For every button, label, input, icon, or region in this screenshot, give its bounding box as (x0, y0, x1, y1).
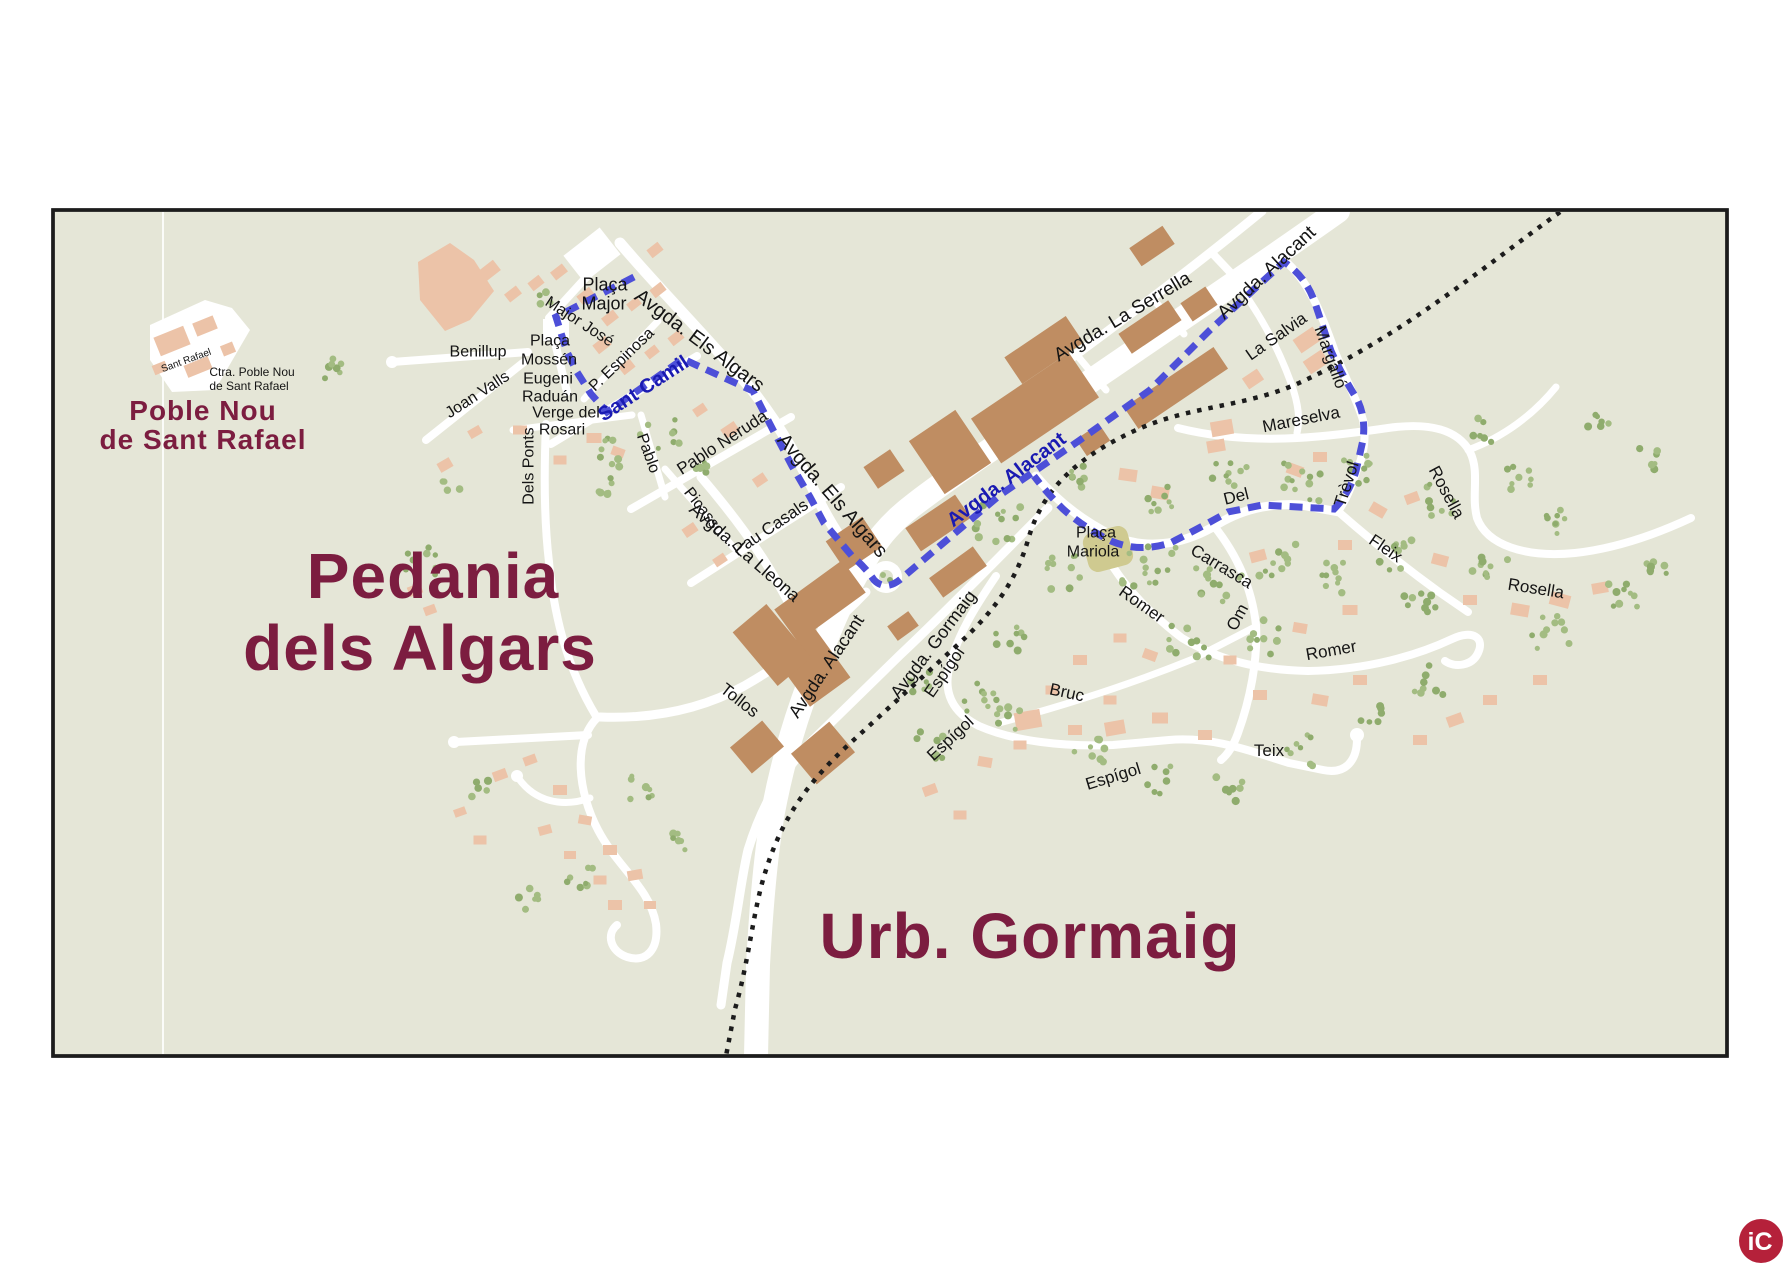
tree-dot (678, 838, 684, 844)
tree-dot (1270, 560, 1276, 566)
tree-dot (1148, 509, 1154, 515)
street-label: Plaça (1076, 525, 1116, 542)
map-canvas: PlaçaMajorMajor JoséP. EspinosaPlaçaMoss… (0, 0, 1787, 1263)
tree-dot (1101, 745, 1109, 753)
tree-dot (1634, 604, 1640, 610)
tree-dot (1367, 719, 1372, 724)
street-label: Benillup (450, 344, 507, 361)
tree-dot (1323, 560, 1330, 567)
tree-dot (672, 417, 677, 422)
tree-dot (1072, 749, 1078, 755)
tree-dot (1664, 571, 1669, 576)
tree-dot (1001, 509, 1006, 514)
tree-dot (1012, 515, 1019, 522)
street-label: Raduán (522, 389, 578, 406)
tree-dot (1069, 469, 1074, 474)
tree-dot (1127, 551, 1133, 557)
tree-dot (1228, 460, 1234, 466)
tree-dot (1080, 463, 1087, 470)
tree-dot (1540, 615, 1546, 621)
building (1353, 675, 1367, 685)
tree-dot (1045, 566, 1050, 571)
tree-dot (583, 881, 588, 886)
tree-dot (1004, 535, 1011, 542)
tree-dot (974, 681, 980, 687)
building (1152, 713, 1168, 724)
tree-dot (1280, 484, 1288, 492)
street-label: Dels Ponts (521, 427, 538, 504)
tree-dot (1305, 480, 1313, 488)
tree-dot (484, 777, 492, 785)
tree-dot (1636, 445, 1643, 452)
street-label: Ctra. Poble Nou (209, 365, 294, 379)
tree-dot (1424, 608, 1431, 615)
building (1338, 540, 1352, 550)
tree-dot (1315, 497, 1322, 504)
tree-dot (597, 489, 605, 497)
tree-dot (670, 835, 676, 841)
tree-dot (1528, 477, 1534, 483)
tree-dot (1387, 567, 1392, 572)
tree-dot (1615, 600, 1623, 608)
tree-dot (1425, 497, 1433, 505)
tree-dot (914, 735, 921, 742)
tree-dot (682, 847, 687, 852)
tree-dot (974, 520, 981, 527)
building (1104, 696, 1117, 705)
tree-dot (1377, 705, 1384, 712)
tree-dot (602, 438, 607, 443)
tree-dot (1165, 567, 1171, 573)
tree-dot (1412, 689, 1418, 695)
tree-dot (1193, 565, 1199, 571)
tree-dot (441, 478, 447, 484)
tree-dot (564, 879, 571, 886)
tree-dot (1507, 485, 1515, 493)
tree-dot (1014, 647, 1022, 655)
tree-dot (1364, 453, 1370, 459)
tree-dot (1166, 637, 1171, 642)
tree-dot (1094, 736, 1101, 743)
tree-dot (1338, 589, 1345, 596)
building (587, 433, 602, 443)
tree-dot (468, 793, 476, 801)
tree-dot (1420, 678, 1428, 686)
building (1073, 655, 1087, 665)
tree-dot (1561, 626, 1568, 633)
tree-dot (1222, 592, 1230, 600)
tree-dot (537, 292, 543, 298)
tree-dot (1439, 691, 1446, 698)
tree-dot (1173, 545, 1179, 551)
tree-dot (1323, 583, 1329, 589)
tree-dot (1426, 662, 1433, 669)
building (1483, 695, 1497, 705)
tree-dot (975, 533, 983, 541)
street-label: Teix (1254, 741, 1285, 760)
tree-dot (1021, 634, 1028, 641)
tree-dot (962, 698, 968, 704)
tree-dot (981, 697, 988, 704)
tree-dot (1275, 625, 1281, 631)
tree-dot (1375, 718, 1382, 725)
street-label: Mossén (521, 352, 577, 369)
tree-dot (1045, 560, 1052, 567)
tree-dot (1068, 564, 1075, 571)
region-title-poble-nou-line2: de Sant Rafael (100, 424, 307, 455)
building (553, 785, 567, 795)
building (1224, 656, 1237, 665)
tree-dot (1119, 577, 1125, 583)
tree-dot (1076, 574, 1083, 581)
tree-dot (985, 704, 990, 709)
tree-dot (1469, 567, 1477, 575)
tree-dot (1605, 580, 1613, 588)
tree-dot (1164, 484, 1170, 490)
building (1198, 730, 1212, 740)
tree-dot (1201, 645, 1207, 651)
tree-dot (1504, 556, 1511, 563)
tree-dot (1260, 616, 1268, 624)
tree-dot (1243, 464, 1249, 470)
tree-dot (1623, 581, 1630, 588)
building (1068, 725, 1082, 735)
tree-dot (1151, 501, 1156, 506)
tree-dot (995, 720, 1002, 727)
tree-dot (1474, 415, 1482, 423)
tree-dot (1216, 581, 1223, 588)
tree-dot (603, 490, 611, 498)
tree-dot (1648, 461, 1656, 469)
tree-dot (1167, 499, 1172, 504)
tree-dot (1239, 779, 1246, 786)
tree-dot (608, 475, 614, 481)
tree-dot (1477, 433, 1483, 439)
tree-dot (1405, 602, 1411, 608)
tree-dot (597, 454, 604, 461)
tree-dot (1611, 603, 1616, 608)
tree-dot (1273, 637, 1281, 645)
tree-dot (1006, 640, 1014, 648)
tree-dot (1504, 466, 1511, 473)
tree-dot (599, 446, 605, 452)
tree-dot (1417, 689, 1425, 697)
building (608, 900, 622, 910)
tree-dot (1478, 554, 1486, 562)
tree-dot (1613, 588, 1621, 596)
tree-dot (1290, 478, 1295, 483)
tree-dot (1224, 473, 1229, 478)
tree-dot (1278, 565, 1285, 572)
tree-dot (646, 794, 652, 800)
tree-dot (981, 691, 987, 697)
building (1343, 605, 1358, 615)
tree-dot (1557, 507, 1564, 514)
tree-dot (1488, 439, 1494, 445)
building (1533, 675, 1547, 685)
tree-dot (675, 831, 681, 837)
building (1118, 468, 1137, 482)
tree-dot (645, 422, 651, 428)
tree-dot (1527, 482, 1533, 488)
tree-dot (1335, 575, 1341, 581)
tree-dot (1554, 513, 1560, 519)
tree-dot (1152, 789, 1158, 795)
tree-dot (1014, 631, 1020, 637)
tree-dot (1016, 707, 1023, 714)
building (594, 876, 607, 885)
tree-dot (1143, 565, 1149, 571)
tree-dot (526, 885, 534, 893)
tree-dot (1584, 423, 1592, 431)
tree-dot (1540, 630, 1548, 638)
tree-dot (1597, 422, 1605, 430)
tree-dot (609, 437, 616, 444)
building (954, 811, 967, 820)
tree-dot (647, 787, 652, 792)
tree-dot (1166, 645, 1174, 653)
tree-dot (1515, 474, 1522, 481)
street-label: Plaça (582, 274, 628, 294)
tree-dot (1154, 568, 1161, 575)
tree-dot (995, 512, 1000, 517)
tree-dot (1168, 550, 1175, 557)
tree-dot (1331, 564, 1339, 572)
tree-dot (1308, 734, 1314, 740)
tree-dot (1307, 761, 1314, 768)
tree-dot (1317, 470, 1324, 477)
street-label: Eugeni (523, 371, 573, 388)
logo-text: iC (1748, 1228, 1773, 1256)
building (644, 901, 656, 909)
tree-dot (1220, 599, 1226, 605)
tree-dot (1555, 531, 1560, 536)
tree-dot (1047, 585, 1055, 593)
tree-dot (1226, 790, 1232, 796)
tree-dot (535, 896, 541, 902)
tree-dot (1154, 506, 1161, 513)
map-page: PlaçaMajorMajor JoséP. EspinosaPlaçaMoss… (0, 0, 1787, 1263)
tree-dot (1004, 711, 1012, 719)
tree-dot (1288, 750, 1294, 756)
tree-dot (1422, 671, 1430, 679)
tree-dot (1212, 773, 1220, 781)
tree-dot (1647, 567, 1655, 575)
tree-dot (1428, 512, 1435, 519)
tree-dot (1509, 481, 1514, 486)
tree-dot (589, 865, 596, 872)
tree-dot (522, 906, 529, 913)
tree-dot (1225, 478, 1231, 484)
building (603, 845, 617, 855)
tree-dot (1551, 619, 1558, 626)
street-label: Rosari (539, 422, 585, 439)
tree-dot (609, 480, 615, 486)
tree-dot (1409, 594, 1416, 601)
building (554, 456, 567, 465)
tree-dot (993, 640, 1001, 648)
tree-dot (1232, 797, 1240, 805)
tree-dot (1294, 741, 1300, 747)
tree-dot (1566, 640, 1573, 647)
tree-dot (1168, 764, 1174, 770)
tree-dot (1432, 687, 1440, 695)
tree-dot (1066, 584, 1074, 592)
logo: iC (1739, 1219, 1783, 1263)
tree-dot (1263, 569, 1268, 574)
tree-dot (992, 538, 999, 545)
tree-dot (1014, 625, 1020, 631)
tree-dot (1562, 516, 1567, 521)
tree-dot (1013, 727, 1018, 732)
tree-dot (1254, 637, 1260, 643)
tree-dot (444, 487, 450, 493)
street-label: de Sant Rafael (209, 379, 288, 393)
tree-dot (669, 430, 676, 437)
tree-dot (1484, 574, 1490, 580)
tree-dot (1439, 508, 1445, 514)
tree-dot (1247, 645, 1253, 651)
tree-dot (1142, 571, 1147, 576)
building (1253, 690, 1267, 700)
tree-dot (1553, 521, 1558, 526)
tree-dot (1004, 703, 1012, 711)
tree-dot (627, 796, 633, 802)
tree-dot (1340, 560, 1346, 566)
building (1114, 634, 1127, 643)
tree-dot (1628, 591, 1633, 596)
tree-dot (993, 631, 999, 637)
street-label: Verge del (532, 405, 600, 422)
region-title-pedania-line2: dels Algars (243, 612, 597, 684)
tree-dot (1198, 591, 1204, 597)
tree-dot (1432, 604, 1438, 610)
tree-dot (1281, 551, 1289, 559)
street-label: Plaça (530, 333, 570, 350)
tree-dot (1307, 497, 1312, 502)
tree-dot (1193, 652, 1201, 660)
tree-dot (1299, 468, 1305, 474)
tree-dot (1323, 572, 1329, 578)
tree-dot (1376, 558, 1384, 566)
tree-dot (1140, 556, 1148, 564)
tree-dot (1209, 475, 1216, 482)
tree-dot (1144, 495, 1151, 502)
tree-dot (1661, 562, 1669, 570)
tree-dot (1193, 637, 1200, 644)
building (1014, 741, 1027, 750)
tree-dot (1088, 744, 1093, 749)
building (474, 836, 487, 845)
tree-dot (542, 288, 550, 296)
tree-dot (1400, 592, 1408, 600)
tree-dot (1397, 565, 1404, 572)
tree-dot (615, 463, 623, 471)
tree-dot (1469, 432, 1477, 440)
tree-dot (1535, 646, 1540, 651)
tree-dot (1510, 464, 1516, 470)
building (564, 851, 576, 859)
tree-dot (1653, 447, 1661, 455)
tree-dot (1592, 412, 1598, 418)
street-label: Mariola (1067, 544, 1120, 561)
tree-dot (917, 728, 924, 735)
tree-dot (1213, 461, 1219, 467)
tree-dot (1161, 493, 1168, 500)
tree-dot (515, 894, 523, 902)
tree-dot (1100, 758, 1107, 765)
tree-dot (1246, 635, 1254, 643)
tree-dot (1363, 477, 1369, 483)
tree-dot (675, 439, 682, 446)
tree-dot (1016, 503, 1024, 511)
tree-dot (1605, 420, 1611, 426)
tree-dot (628, 776, 635, 783)
tree-dot (456, 485, 464, 493)
tree-dot (1183, 625, 1191, 633)
tree-dot (1076, 478, 1084, 486)
tree-dot (1255, 572, 1263, 580)
tree-dot (1423, 598, 1431, 606)
tree-dot (1261, 636, 1267, 642)
building (1463, 595, 1477, 605)
tree-dot (1206, 655, 1212, 661)
tree-dot (994, 711, 1000, 717)
tree-dot (1144, 781, 1151, 788)
tree-dot (1554, 613, 1560, 619)
tree-dot (483, 787, 490, 794)
tree-dot (998, 516, 1005, 523)
tree-dot (1147, 580, 1152, 585)
tree-dot (1285, 462, 1292, 469)
tree-dot (1069, 474, 1075, 480)
street-label: Major (581, 293, 626, 313)
tree-dot (1408, 536, 1416, 544)
tree-dot (1358, 717, 1365, 724)
tree-dot (614, 455, 622, 463)
tree-dot (1307, 474, 1313, 480)
tree-dot (1558, 618, 1565, 625)
tree-dot (1292, 541, 1299, 548)
tree-dot (993, 697, 999, 703)
tree-dot (1157, 791, 1163, 797)
tree-dot (1151, 764, 1157, 770)
tree-dot (1163, 777, 1171, 785)
tree-dot (1236, 785, 1243, 792)
tree-dot (1526, 467, 1532, 473)
tree-dot (1163, 768, 1170, 775)
tree-dot (1088, 752, 1096, 760)
region-title-urb-gormaig: Urb. Gormaig (820, 900, 1241, 972)
tree-dot (1152, 580, 1158, 586)
building (1313, 452, 1327, 462)
building (1413, 735, 1427, 745)
tree-dot (328, 361, 335, 368)
tree-dot (1169, 504, 1174, 509)
tree-dot (1544, 515, 1551, 522)
tree-dot (990, 690, 996, 696)
tree-dot (1145, 543, 1152, 550)
tree-dot (1269, 573, 1275, 579)
region-title-pedania-line1: Pedania (307, 540, 559, 612)
tree-dot (1292, 487, 1298, 493)
tree-dot (1488, 563, 1494, 569)
tree-dot (322, 375, 328, 381)
region-title-poble-nou-line1: Poble Nou (129, 395, 276, 426)
tree-dot (1285, 560, 1291, 566)
tree-dot (1529, 632, 1535, 638)
tree-dot (474, 784, 482, 792)
